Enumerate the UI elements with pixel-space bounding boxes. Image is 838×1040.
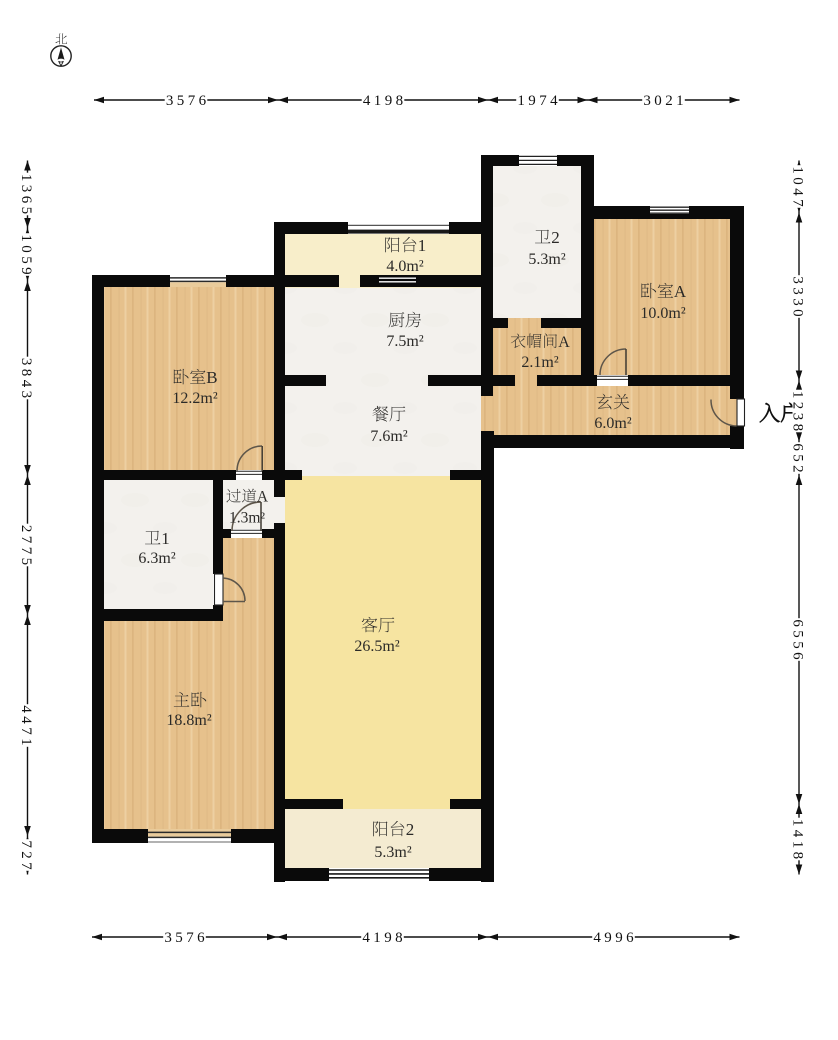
svg-text:B: B [206,368,217,387]
svg-text:1: 1 [161,529,170,548]
svg-text:4198: 4198 [362,930,406,946]
svg-text:2775: 2775 [18,525,34,569]
svg-text:6.0m²: 6.0m² [594,415,631,432]
svg-text:5.3m²: 5.3m² [374,844,411,861]
svg-text:3021: 3021 [643,93,687,109]
svg-text:3576: 3576 [164,930,208,946]
svg-text:1418: 1418 [790,819,806,863]
svg-text:4198: 4198 [363,93,407,109]
svg-text:5.3m²: 5.3m² [528,251,565,268]
svg-text:1238: 1238 [790,391,806,435]
svg-text:1059: 1059 [18,234,34,278]
svg-text:4471: 4471 [18,705,34,749]
svg-text:1974: 1974 [517,93,561,109]
svg-text:12.2m²: 12.2m² [172,390,217,407]
svg-text:4996: 4996 [593,930,637,946]
svg-text:26.5m²: 26.5m² [354,638,399,655]
svg-text:A: A [257,489,269,506]
svg-text:A: A [674,282,687,301]
svg-text:1: 1 [418,236,427,255]
svg-text:10.0m²: 10.0m² [640,305,685,322]
svg-text:18.8m²: 18.8m² [166,712,211,729]
svg-text:2.1m²: 2.1m² [521,354,558,371]
svg-text:3576: 3576 [166,93,210,109]
svg-text:4.0m²: 4.0m² [386,258,423,275]
svg-text:1.3m²: 1.3m² [229,510,265,527]
svg-text:1047: 1047 [790,166,806,210]
svg-text:3330: 3330 [790,276,806,320]
svg-text:652: 652 [790,443,806,476]
svg-text:2: 2 [406,820,415,839]
svg-text:A: A [558,334,570,351]
svg-text:3843: 3843 [18,358,34,402]
svg-text:727: 727 [18,840,34,873]
svg-text:6.3m²: 6.3m² [138,550,175,567]
svg-text:1365: 1365 [18,174,34,218]
svg-text:7.5m²: 7.5m² [386,333,423,350]
svg-text:2: 2 [551,228,560,247]
svg-text:6556: 6556 [790,619,806,663]
svg-text:7.6m²: 7.6m² [370,428,407,445]
